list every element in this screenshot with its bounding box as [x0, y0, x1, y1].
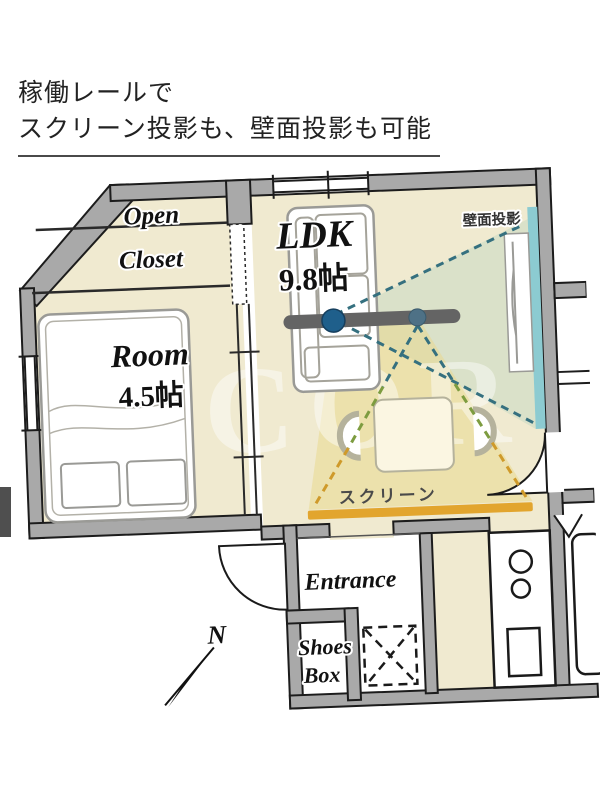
screen-label: スクリーン: [338, 485, 438, 508]
entrance-door-swing: [219, 544, 287, 612]
right-window-line-1: [558, 371, 590, 372]
ldk-size-label: 9.8帖: [278, 260, 349, 298]
caption-block: 稼働レールで スクリーン投影も、壁面投影も可能: [18, 76, 448, 157]
caption-line-1: 稼働レールで: [18, 76, 448, 112]
projector-node-2: [409, 309, 427, 327]
projector-node-1: [322, 309, 346, 333]
burner-2: [512, 579, 531, 598]
wall-projection-label: 壁面投影: [462, 209, 521, 229]
right-stub-lower: [562, 489, 594, 503]
open-closet-label-2: Closet: [119, 245, 185, 274]
hatch-strip: [230, 224, 247, 304]
open-closet-label-1: Open: [123, 201, 180, 230]
pillow-left: [61, 462, 121, 508]
shoes-label: Shoes: [298, 633, 353, 660]
floor-plan-svg: M COR: [0, 139, 600, 736]
pillow-right: [127, 459, 187, 505]
compass: N: [162, 620, 230, 707]
partition-wall-top: [226, 180, 252, 225]
compass-arrow: [166, 647, 216, 707]
right-stub-upper: [554, 282, 587, 298]
caption-line-2: スクリーン投影も、壁面投影も可能: [18, 112, 448, 148]
ldk-bottom-wall-b: [393, 518, 489, 535]
entrance-step-wall: [287, 608, 349, 623]
compass-n-label: N: [206, 620, 228, 650]
ldk-label: LDK: [274, 213, 355, 258]
sink: [507, 628, 541, 676]
bathtub: [572, 533, 600, 674]
table: [374, 397, 455, 472]
box-label: Box: [302, 662, 341, 688]
kitchen: [489, 530, 556, 687]
floor-plan: M COR: [0, 139, 600, 741]
room-size-label: 4.5帖: [118, 378, 184, 413]
burner-1: [509, 550, 532, 573]
shoes-box-marker: [363, 626, 417, 686]
room-label: Room: [109, 335, 190, 374]
right-window-line-2: [558, 383, 590, 384]
entrance-label: Entrance: [303, 566, 397, 596]
tv-board: [504, 233, 533, 372]
